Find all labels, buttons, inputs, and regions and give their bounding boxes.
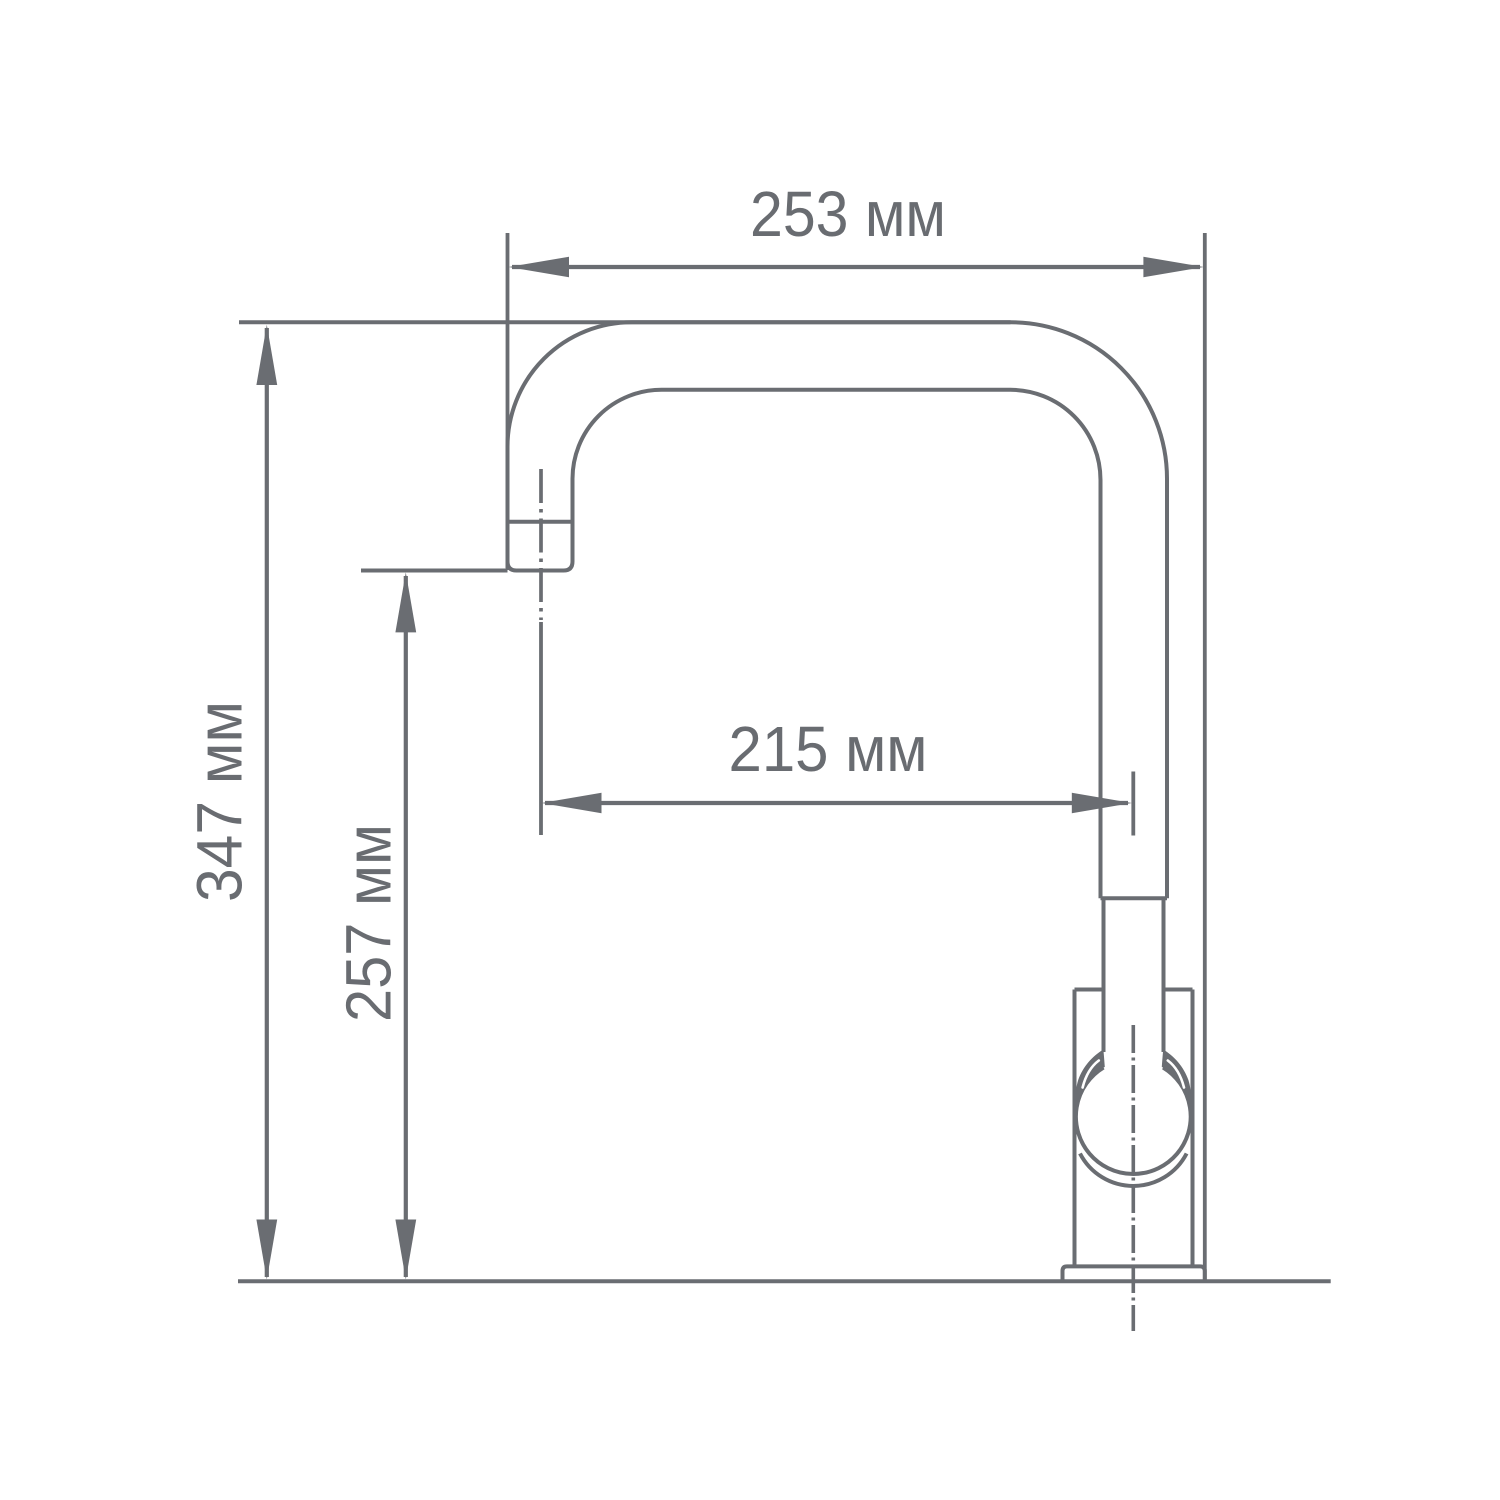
svg-text:257 мм: 257 мм bbox=[333, 824, 405, 1022]
svg-text:347 мм: 347 мм bbox=[184, 701, 256, 902]
svg-text:215 мм: 215 мм bbox=[729, 713, 928, 785]
svg-text:253 мм: 253 мм bbox=[750, 178, 946, 250]
